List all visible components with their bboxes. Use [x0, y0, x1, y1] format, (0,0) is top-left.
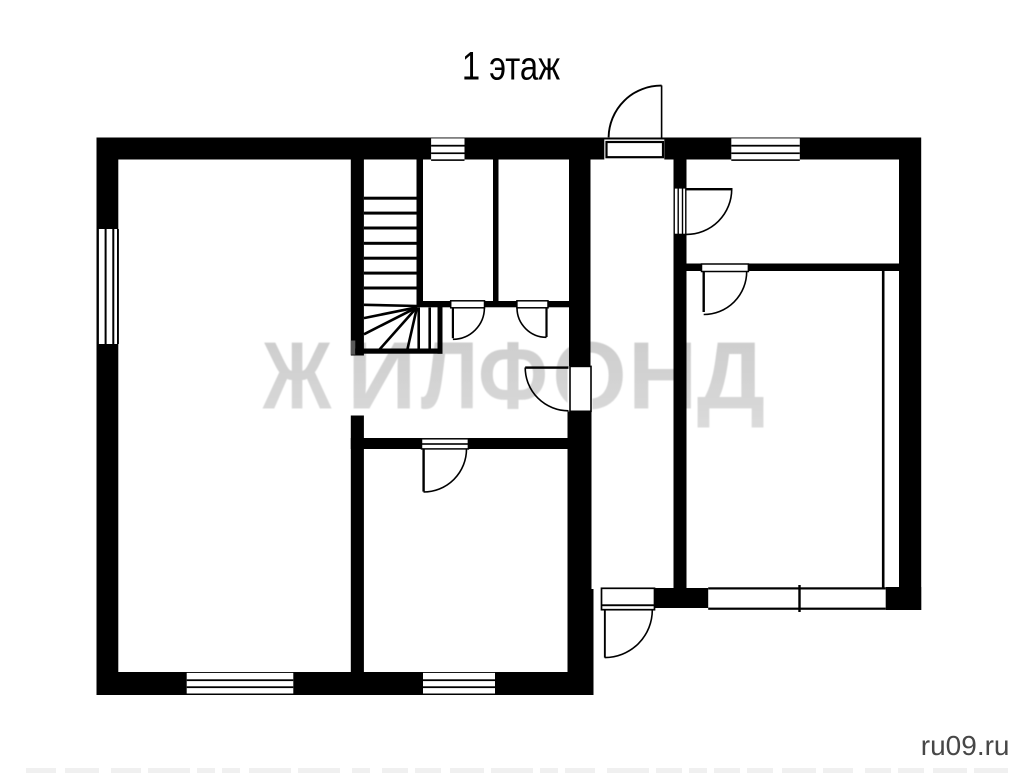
svg-text:Ф: Ф: [478, 321, 548, 429]
svg-text:Н: Н: [628, 323, 697, 430]
svg-text:ru09.ru: ru09.ru: [921, 730, 1010, 761]
svg-text:1 этаж: 1 этаж: [462, 43, 561, 88]
svg-text:Ж: Ж: [262, 323, 332, 430]
svg-text:Д: Д: [697, 323, 765, 430]
